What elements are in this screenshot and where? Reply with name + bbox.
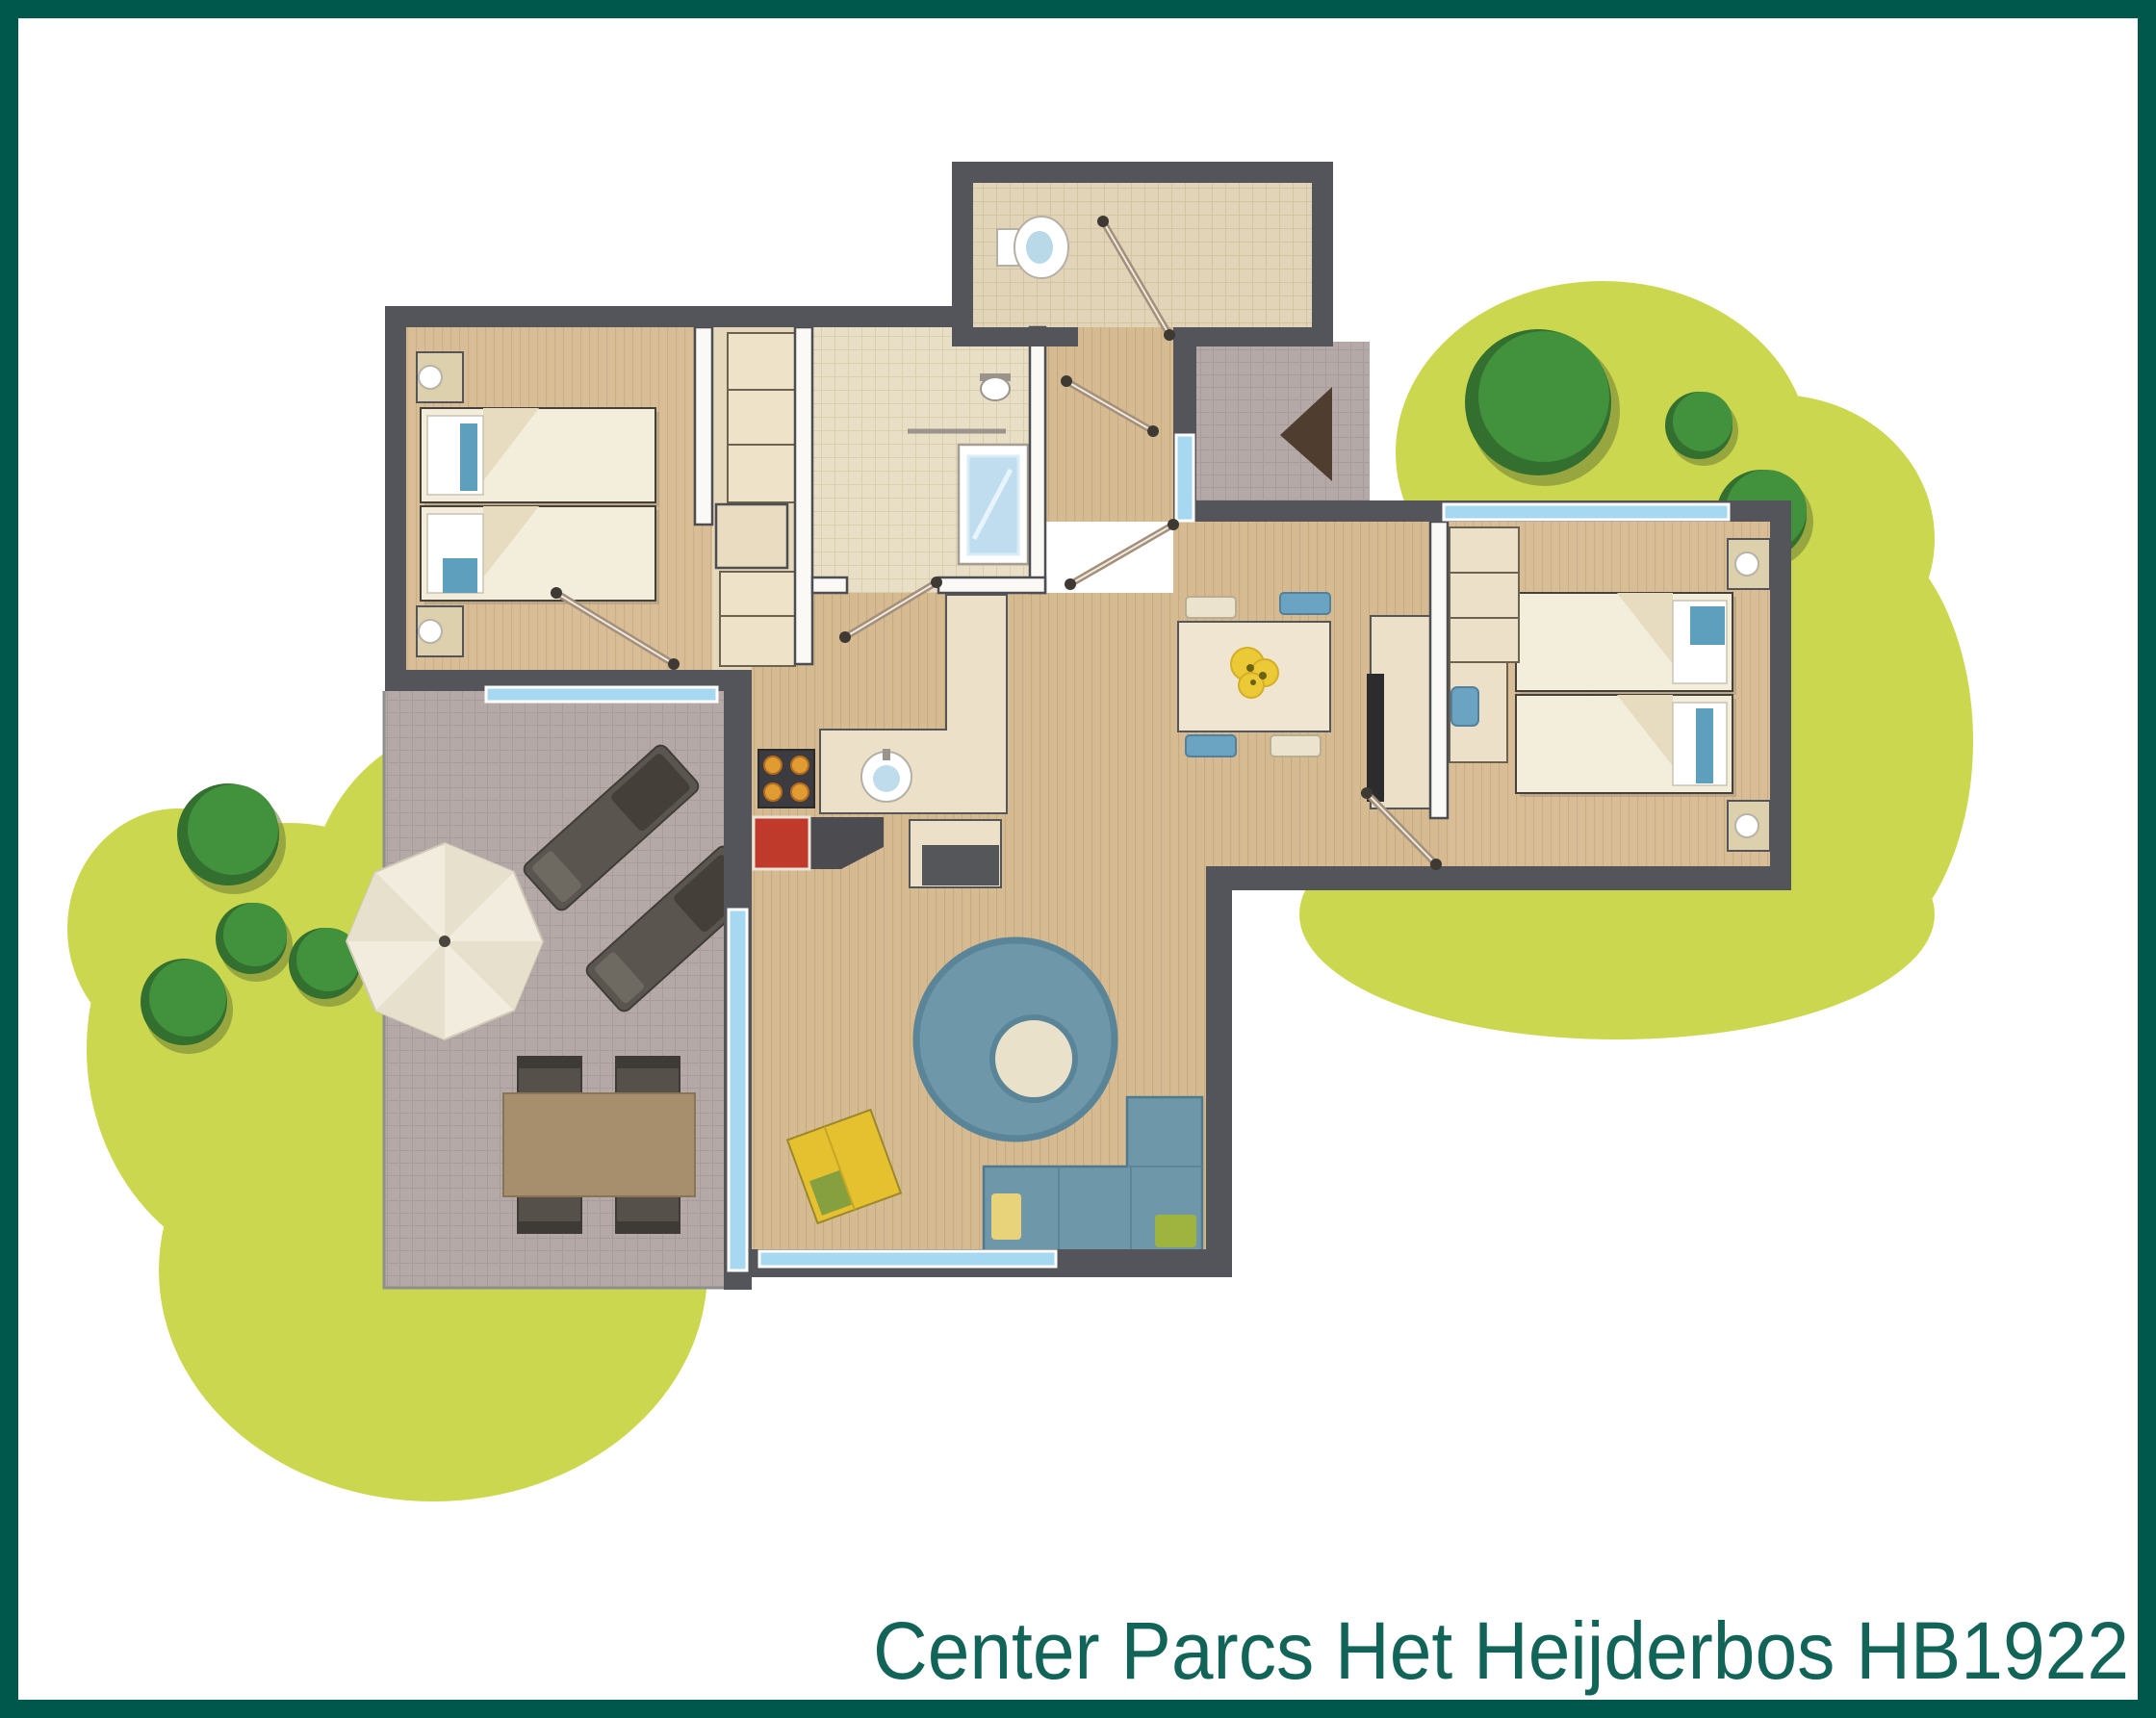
washbasin [981,377,1010,400]
entrance-porch [1196,342,1370,525]
cushion [991,1193,1021,1240]
dining-chair [1270,735,1321,756]
title-text: Center Parcs Het Heijderbos HB1922 [873,1605,2129,1696]
hob [758,750,814,808]
wall [952,162,1333,183]
wall [1312,162,1333,346]
wall [952,162,973,346]
shower [959,445,1028,564]
dining-chair [1186,597,1236,618]
dining-chair [1186,735,1236,756]
bar-cabinet [910,820,1001,887]
lamp-icon [1735,814,1758,837]
wall [812,577,847,593]
wall [1173,327,1312,346]
floor-plan-canvas: Center Parcs Het Heijderbos HB1922 [0,0,2156,1718]
wall [695,327,712,525]
tv-cabinet [1367,616,1430,808]
lamp-icon [1735,552,1758,576]
wardrobe [716,333,795,666]
lamp-icon [419,366,442,389]
parasol-icon [346,843,543,1039]
window [729,910,747,1270]
wall [1030,327,1045,593]
desk-chair [1451,687,1478,726]
pouf [992,1017,1075,1100]
wall [973,327,1078,346]
wall [1206,866,1232,1277]
lamp-icon [419,620,442,643]
dining-chair [1280,593,1330,614]
wall [385,306,406,691]
wardrobe [1450,527,1519,662]
wall [1770,500,1791,890]
window [759,1251,1056,1267]
cushion [1155,1215,1196,1247]
wall [1430,522,1448,818]
wall [938,577,1045,593]
wall [1206,866,1791,890]
window [1444,504,1729,520]
hall-floor [1045,327,1173,522]
wall [795,327,812,664]
window [1176,435,1193,521]
outdoor-dining-table [503,1093,695,1196]
window [486,687,717,702]
tv [1367,674,1384,802]
wall [385,306,956,327]
